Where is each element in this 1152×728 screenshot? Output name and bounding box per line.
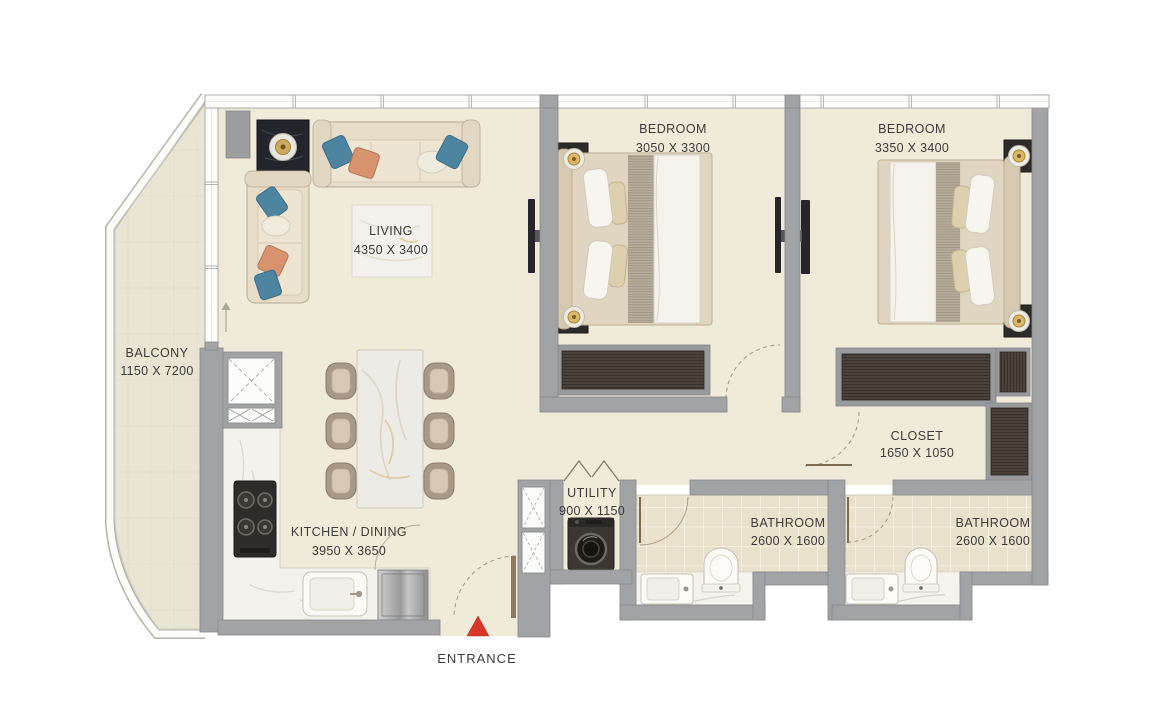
kitchen-sink <box>303 572 367 616</box>
living-dims: 4350 X 3400 <box>354 243 428 257</box>
lamp <box>564 149 585 170</box>
utility-label: UTILITY <box>567 486 617 500</box>
kitchen-label: KITCHEN / DINING <box>291 525 407 539</box>
wall <box>550 480 563 584</box>
column <box>226 111 250 158</box>
sofa-long <box>313 120 480 187</box>
utility-dims: 900 X 1150 <box>559 504 625 518</box>
floor-plan-page: BALCONY 1150 X 7200 LIVING 4350 X 3400 B… <box>0 0 1152 728</box>
wall <box>832 605 972 620</box>
utility <box>568 518 614 571</box>
bathroom-1 <box>636 495 828 605</box>
dining-chair <box>326 363 356 399</box>
cooktop <box>234 481 276 557</box>
wall <box>200 348 223 632</box>
balcony-label: BALCONY <box>126 346 189 360</box>
wall <box>1032 95 1048 585</box>
wardrobe <box>836 348 996 406</box>
sink <box>846 574 898 604</box>
toilet <box>702 548 740 592</box>
wardrobe <box>556 345 710 395</box>
wall <box>218 620 440 635</box>
bathroom-2-label: BATHROOM <box>956 516 1031 530</box>
bathroom-2 <box>845 495 1032 605</box>
bed <box>878 156 1020 328</box>
wall <box>540 107 558 397</box>
dining-chair <box>424 463 454 499</box>
dining-chair <box>424 363 454 399</box>
dining-area <box>326 350 454 508</box>
balcony-dims: 1150 X 7200 <box>120 364 193 378</box>
wall <box>753 572 765 620</box>
washing-machine <box>568 518 614 571</box>
wall <box>620 480 636 620</box>
wall <box>785 107 800 412</box>
bathroom-2-dims: 2600 X 1600 <box>956 534 1030 548</box>
wall <box>828 480 845 620</box>
side-table <box>257 120 309 174</box>
wall <box>960 572 972 620</box>
living-label: LIVING <box>369 224 413 238</box>
dining-chair <box>326 463 356 499</box>
lamp <box>1009 311 1030 332</box>
wall <box>690 480 828 495</box>
closet-wardrobe <box>986 403 1032 480</box>
toilet <box>903 548 939 592</box>
living-rug <box>352 205 432 277</box>
wall <box>540 397 727 412</box>
door-leaf-entrance <box>511 556 516 618</box>
bathroom-1-dims: 2600 X 1600 <box>751 534 825 548</box>
closet-dims: 1650 X 1050 <box>880 446 954 460</box>
lamp <box>564 307 585 328</box>
closet <box>986 403 1032 480</box>
sink <box>641 574 693 604</box>
wall <box>782 397 800 412</box>
wardrobe-small <box>996 348 1030 396</box>
wall <box>550 570 632 584</box>
bedroom-2-dims: 3350 X 3400 <box>875 141 949 155</box>
lamp <box>1009 146 1030 167</box>
dining-chair <box>326 413 356 449</box>
bed <box>556 149 712 329</box>
wall <box>620 605 765 620</box>
bedroom-1-label: BEDROOM <box>639 122 707 136</box>
dishwasher <box>378 570 428 620</box>
closet-label: CLOSET <box>891 429 944 443</box>
bathroom-1-label: BATHROOM <box>751 516 826 530</box>
dining-chair <box>424 413 454 449</box>
bedroom-1-dims: 3050 X 3300 <box>636 141 710 155</box>
kitchen-dims: 3950 X 3650 <box>312 544 386 558</box>
wall <box>893 480 1032 495</box>
sofa-side <box>245 171 311 303</box>
floor-plan-svg: BALCONY 1150 X 7200 LIVING 4350 X 3400 B… <box>0 0 1152 728</box>
bedroom-2-label: BEDROOM <box>878 122 946 136</box>
entrance-label: ENTRANCE <box>437 651 517 666</box>
